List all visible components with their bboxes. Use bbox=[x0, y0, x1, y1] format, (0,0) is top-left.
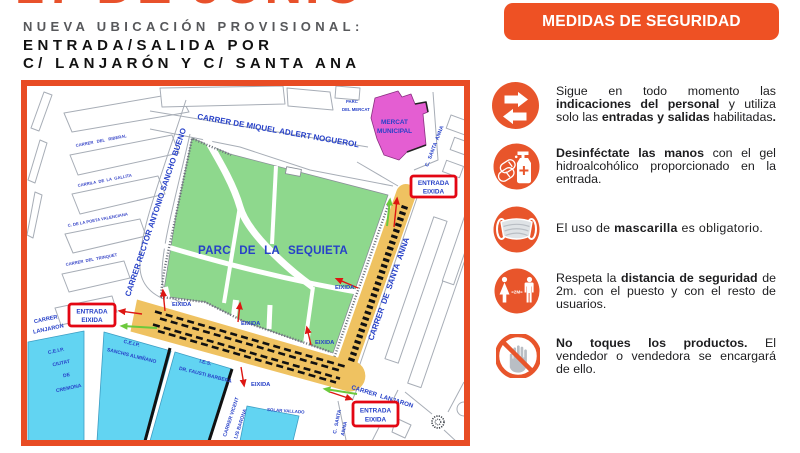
svg-text:PARC DE LA SEQUIETA: PARC DE LA SEQUIETA bbox=[198, 244, 348, 257]
svg-text:EIXIDA: EIXIDA bbox=[241, 321, 261, 327]
svg-text:EIXIDA: EIXIDA bbox=[365, 417, 387, 424]
svg-text:EIXIDA: EIXIDA bbox=[315, 340, 335, 346]
svg-text:MERCAT: MERCAT bbox=[381, 119, 408, 126]
svg-text:EIXIDA: EIXIDA bbox=[81, 317, 103, 324]
svg-text:ENTRADA: ENTRADA bbox=[360, 408, 392, 415]
svg-text:DEL MERCAT: DEL MERCAT bbox=[342, 107, 370, 112]
svg-text:EIXIDA: EIXIDA bbox=[423, 189, 445, 196]
svg-text:«2M»: «2M» bbox=[511, 290, 523, 295]
svg-text:PARC: PARC bbox=[346, 99, 358, 104]
svg-text:EIXIDA: EIXIDA bbox=[251, 382, 271, 388]
svg-text:EIXIDA: EIXIDA bbox=[172, 302, 192, 308]
svg-text:ENTRADA: ENTRADA bbox=[418, 180, 450, 187]
svg-text:EIXIDA: EIXIDA bbox=[335, 285, 355, 291]
svg-text:MUNICIPAL: MUNICIPAL bbox=[377, 128, 412, 135]
svg-text:ENTRADA: ENTRADA bbox=[76, 309, 108, 316]
